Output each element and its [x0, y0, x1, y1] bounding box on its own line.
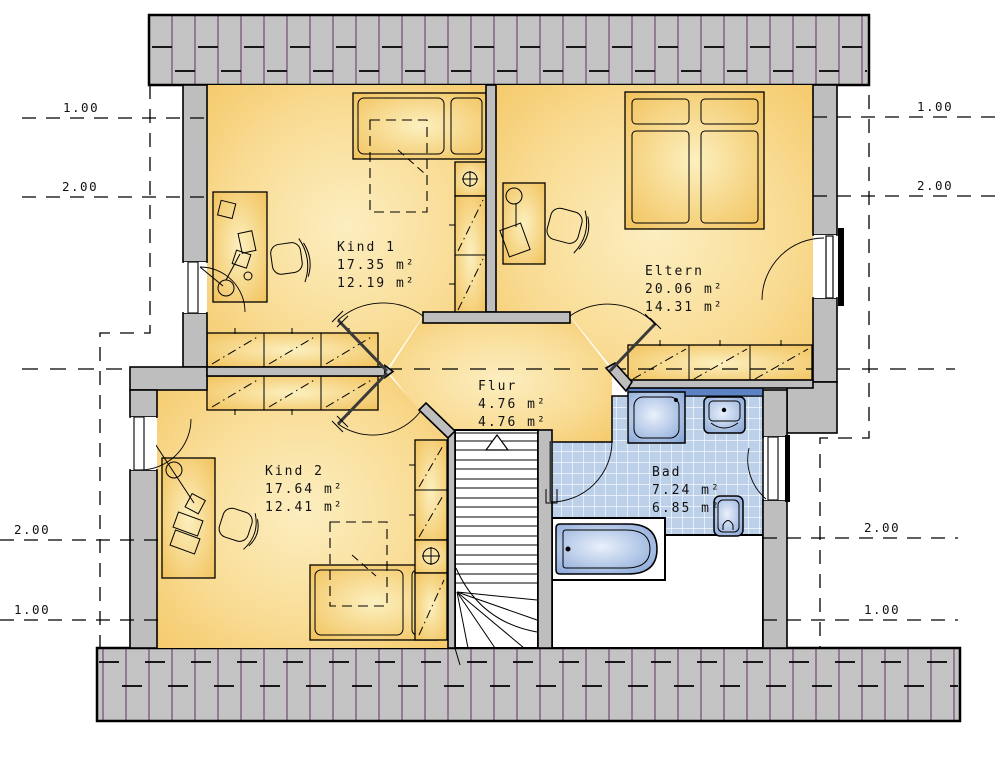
- dim-right-bottom-1: 1.00: [864, 602, 900, 617]
- floorplan-svg: Kind 1 17.35 m² 12.19 m² Eltern 20.06 m²…: [0, 0, 1000, 759]
- flur-top-wall: [423, 312, 570, 323]
- flur-area-gross: 4.76 m²: [478, 397, 547, 412]
- roof-overhang-top: [149, 15, 869, 85]
- kind2-left-wall-lower: [130, 470, 157, 648]
- staircase: [449, 430, 538, 665]
- eltern-area-gross: 20.06 m²: [645, 282, 724, 297]
- kind2-area-living: 12.41 m²: [265, 500, 344, 515]
- desk: [162, 458, 215, 578]
- left-step-wall: [130, 367, 207, 390]
- wardrobe-divider-wall: [207, 367, 385, 376]
- kind2-area-gross: 17.64 m²: [265, 482, 344, 497]
- kind1-area-gross: 17.35 m²: [337, 258, 416, 273]
- shower: [628, 392, 685, 443]
- dim-left-bottom-1: 1.00: [14, 602, 50, 617]
- bad-right-wall-upper: [763, 390, 787, 437]
- kind1-label: Kind 1: [337, 240, 396, 255]
- bad-area-gross: 7.24 m²: [652, 483, 721, 498]
- dim-right-top-1: 1.00: [917, 99, 953, 114]
- eltern-area-living: 14.31 m²: [645, 300, 724, 315]
- double-bed: [625, 92, 764, 229]
- partition-kind1-eltern: [486, 85, 496, 312]
- flur-label: Flur: [478, 379, 517, 394]
- eltern-right-wall-lower: [813, 298, 837, 382]
- bad-area-living: 6.85 m²: [652, 501, 721, 516]
- floorplan-canvas: Kind 1 17.35 m² 12.19 m² Eltern 20.06 m²…: [0, 0, 1000, 759]
- right-step-block: [787, 382, 837, 433]
- kind2-left-wall-upper: [130, 390, 157, 417]
- eltern-label: Eltern: [645, 264, 704, 279]
- kind1-area-living: 12.19 m²: [337, 276, 416, 291]
- flur-area-living: 4.76 m²: [478, 415, 547, 430]
- bathtub: [556, 524, 657, 574]
- stairwell-left-wall: [448, 430, 455, 648]
- dim-right-bottom-2: 2.00: [864, 520, 900, 535]
- bad-label: Bad: [652, 465, 681, 480]
- desk: [213, 192, 267, 302]
- dim-left-top-1: 1.00: [63, 100, 99, 115]
- eltern-right-wall-upper: [813, 85, 837, 235]
- dim-right-top-2: 2.00: [917, 178, 953, 193]
- dim-left-top-2: 2.00: [62, 179, 98, 194]
- eltern-bad-wall: [628, 380, 813, 388]
- kind1-left-wall-lower: [183, 313, 207, 367]
- wardrobe-row: [628, 345, 812, 382]
- kind2-label: Kind 2: [265, 464, 324, 479]
- kind1-left-wall-upper: [183, 85, 207, 262]
- bad-right-wall-lower: [763, 500, 787, 648]
- roof-overhang-bottom: [97, 648, 960, 721]
- sink: [704, 397, 745, 433]
- dim-left-bottom-2: 2.00: [14, 522, 50, 537]
- bed: [353, 93, 487, 159]
